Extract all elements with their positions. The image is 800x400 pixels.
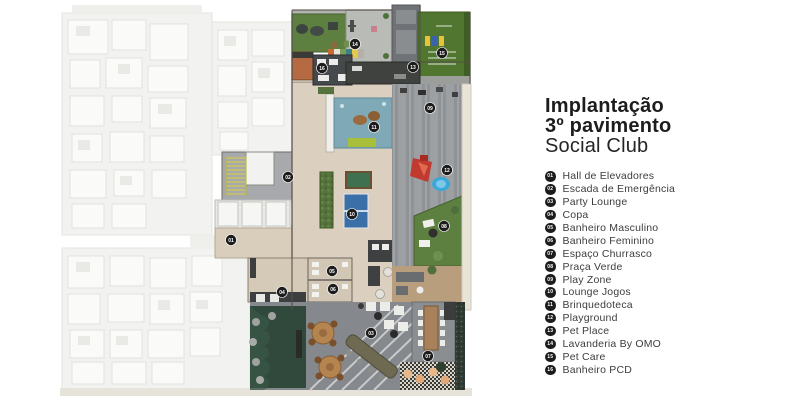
plan-badge-12: 12 [442, 165, 453, 176]
svg-text:12: 12 [444, 168, 450, 174]
svg-text:10: 10 [349, 212, 355, 218]
bbq-area [412, 302, 455, 362]
roof-strip [392, 5, 420, 62]
title-line-3: Social Club [545, 136, 785, 156]
legend-label: Escada de Emergência [563, 183, 676, 195]
legend-label: Play Zone [563, 274, 612, 286]
legend-label: Espaço Churrasco [563, 248, 653, 260]
plan-badge-01: 01 [226, 235, 237, 246]
legend-item: 03Party Lounge [545, 196, 785, 209]
plan-badge-09: 09 [425, 103, 436, 114]
legend-label: Banheiro Masculino [563, 222, 659, 234]
planter-strip [455, 302, 465, 390]
legend-label: Brinquedoteca [563, 299, 633, 311]
legend-number-badge: 14 [545, 339, 556, 350]
page-title: Implantação 3º pavimento Social Club [545, 96, 785, 156]
plan-badge-10: 10 [347, 209, 358, 220]
legend-number-badge: 12 [545, 313, 556, 324]
legend-number-badge: 05 [545, 223, 556, 234]
legend-number-badge: 07 [545, 249, 556, 260]
svg-text:14: 14 [352, 42, 358, 48]
legend-item: 04Copa [545, 209, 785, 222]
plan-badge-16: 16 [317, 63, 328, 74]
legend-number-badge: 02 [545, 184, 556, 195]
legend-label: Party Lounge [563, 196, 628, 208]
legend-label: Pet Place [563, 325, 610, 337]
svg-text:07: 07 [425, 354, 431, 360]
legend-label: Banheiro Feminino [563, 235, 655, 247]
legend-number-badge: 11 [545, 300, 556, 311]
plan-badge-07: 07 [423, 351, 434, 362]
legend-item: 01Hall de Elevadores [545, 170, 785, 183]
lounge-jogos [320, 172, 371, 228]
svg-text:03: 03 [368, 331, 374, 337]
legend-item: 14Lavanderia By OMO [545, 338, 785, 351]
plan-badge-06: 06 [328, 284, 339, 295]
legend-number-badge: 13 [545, 326, 556, 337]
floor-plan: 01020304050607080910111213141516 [0, 0, 560, 400]
legend-label: Copa [563, 209, 589, 221]
svg-text:06: 06 [330, 287, 336, 293]
svg-text:16: 16 [319, 66, 325, 72]
legend-label: Hall de Elevadores [563, 170, 655, 182]
right-wall-strip [462, 84, 471, 310]
svg-text:02: 02 [285, 175, 291, 181]
legend-item: 11Brinquedoteca [545, 299, 785, 312]
plan-badge-14: 14 [350, 39, 361, 50]
legend-item: 02Escada de Emergência [545, 183, 785, 196]
legend-item: 12Playground [545, 312, 785, 325]
legend-label: Playground [563, 312, 618, 324]
storage-room [292, 52, 313, 80]
svg-text:15: 15 [439, 51, 445, 57]
legend-item: 16Banheiro PCD [545, 363, 785, 376]
legend-item: 07Espaço Churrasco [545, 247, 785, 260]
legend-label: Praça Verde [563, 261, 623, 273]
plan-badge-15: 15 [437, 48, 448, 59]
svg-text:09: 09 [427, 106, 433, 112]
legend-item: 05Banheiro Masculino [545, 222, 785, 235]
plan-badge-03: 03 [366, 328, 377, 339]
legend-number-badge: 15 [545, 352, 556, 363]
svg-text:04: 04 [279, 290, 285, 296]
legend-label: Lounge Jogos [563, 286, 631, 298]
legend-label: Pet Care [563, 351, 606, 363]
legend-number-badge: 16 [545, 365, 556, 376]
legend-number-badge: 10 [545, 287, 556, 298]
title-line-2: 3º pavimento [545, 116, 785, 136]
legend-item: 09Play Zone [545, 273, 785, 286]
legend-number-badge: 08 [545, 261, 556, 272]
title-line-1: Implantação [545, 96, 785, 116]
legend-number-badge: 01 [545, 171, 556, 182]
svg-text:05: 05 [329, 269, 335, 275]
legend-label: Banheiro PCD [563, 364, 633, 376]
legend-item: 10Lounge Jogos [545, 286, 785, 299]
plan-badge-08: 08 [439, 221, 450, 232]
plan-badge-02: 02 [283, 172, 294, 183]
legend-list: 01Hall de Elevadores02Escada de Emergênc… [545, 170, 785, 376]
svg-text:08: 08 [441, 224, 447, 230]
outdoor-lounge-deck [392, 266, 462, 303]
legend-item: 15Pet Care [545, 350, 785, 363]
svg-text:01: 01 [228, 238, 234, 244]
screenshot-root: 01020304050607080910111213141516 Implant… [0, 0, 800, 400]
legend-number-badge: 03 [545, 197, 556, 208]
legend-label: Lavanderia By OMO [563, 338, 662, 350]
legend-number-badge: 04 [545, 210, 556, 221]
floor-plan-svg: 01020304050607080910111213141516 [0, 0, 560, 400]
svg-text:13: 13 [410, 65, 416, 71]
legend-number-badge: 06 [545, 236, 556, 247]
plan-badge-04: 04 [277, 287, 288, 298]
legend-item: 08Praça Verde [545, 260, 785, 273]
plan-badge-05: 05 [327, 266, 338, 277]
plan-badge-13: 13 [408, 62, 419, 73]
svg-text:11: 11 [371, 125, 377, 131]
legend-panel: Implantação 3º pavimento Social Club 01H… [545, 96, 785, 376]
mosaic-terrace [400, 362, 455, 390]
legend-item: 13Pet Place [545, 325, 785, 338]
legend-number-badge: 09 [545, 274, 556, 285]
plan-badge-11: 11 [369, 122, 380, 133]
legend-item: 06Banheiro Feminino [545, 234, 785, 247]
bathrooms [308, 258, 352, 302]
